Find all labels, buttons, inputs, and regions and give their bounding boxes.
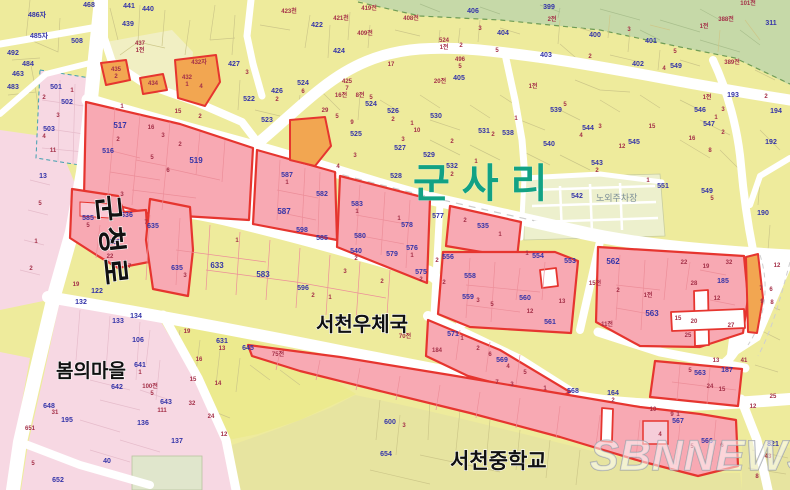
parcel-label: 190: [757, 210, 769, 217]
parcel-label: 529: [423, 152, 435, 159]
parcel-label: 132: [75, 299, 87, 306]
parcel-label: 551: [657, 183, 669, 190]
parcel-label: 526: [387, 108, 399, 115]
parcel-label: 399: [543, 4, 555, 11]
label-parking: 노외주차장: [596, 192, 637, 203]
parcel-label: 15전: [589, 279, 602, 287]
parcel-label: 528: [390, 173, 402, 180]
label-middle-school: 서천중학교: [450, 450, 547, 473]
parcel-label: 523: [261, 117, 273, 124]
parcel-label: 13: [39, 173, 47, 180]
parcel-label: 424: [333, 48, 345, 55]
parcel-label: 542: [571, 193, 583, 200]
parcel-label: 432: [182, 75, 193, 81]
parcel-label: 12: [750, 404, 757, 410]
parcel-label: 539: [550, 107, 562, 114]
parcel-label: 29: [322, 108, 329, 114]
parcel-label: 485자: [30, 31, 49, 40]
parcel-label: 540: [350, 248, 362, 255]
parcel-label: 421천: [333, 14, 349, 22]
parcel-label: 41: [741, 358, 748, 364]
parcel-label: 559: [462, 294, 474, 301]
parcel-label: 16: [196, 357, 203, 363]
parcel-label: 560: [519, 295, 531, 302]
parcel-label: 434: [148, 81, 159, 87]
parcel-label: 486자: [28, 10, 47, 19]
parcel-label: 427: [228, 61, 240, 68]
parcel-label: 580: [354, 233, 366, 240]
parcel-label: 100전: [142, 382, 158, 390]
parcel-label: 12: [619, 144, 626, 150]
parcel-label: 408전: [403, 14, 419, 22]
parcel-label: 17: [388, 62, 395, 68]
parcel-label: 522: [243, 96, 255, 103]
parcel-label: 558: [464, 273, 476, 280]
parcel-label: 538: [502, 130, 514, 137]
parcel-label: 106: [132, 337, 144, 344]
parcel-label: 400: [589, 32, 601, 39]
parcel-label: 568: [567, 388, 579, 395]
parcel-label: 540: [543, 141, 555, 148]
parcel-label: 111: [157, 408, 167, 414]
parcel-label: 185: [717, 278, 729, 285]
parcel-label: 1전: [644, 291, 653, 299]
parcel-label: 1전: [703, 93, 712, 101]
parcel-label: 15: [719, 387, 726, 393]
parcel-label: 563: [694, 370, 706, 377]
parcel-label: 13: [559, 299, 566, 305]
parcel-label: 20전: [434, 77, 447, 85]
parcel-label: 635: [171, 265, 183, 272]
parcel-label: 425: [342, 79, 353, 85]
parcel-label: 651: [25, 426, 36, 432]
parcel-label: 75전: [272, 350, 285, 358]
parcel-label: 524: [365, 101, 377, 108]
parcel-label: 195: [61, 417, 73, 424]
parcel-label: 576: [406, 245, 418, 252]
parcel-label: 1전: [136, 46, 145, 54]
label-bom-village: 봄의마을: [56, 360, 126, 382]
parcel-label: 32: [189, 401, 196, 407]
parcel-label: 562: [606, 257, 620, 266]
parcel-label: 633: [210, 261, 224, 270]
parcel-label: 631: [216, 338, 228, 345]
parcel-label: 544: [582, 125, 594, 132]
parcel-label: 19: [184, 329, 191, 335]
parcel-label: 22: [681, 260, 688, 266]
parcel-label: 556: [442, 254, 454, 261]
parcel-label: 563: [645, 309, 659, 318]
parcel-label: 32: [726, 260, 733, 266]
parcel-label: 1전: [700, 22, 709, 30]
parcel-label: 25: [770, 394, 777, 400]
parcel-label: 587: [281, 172, 293, 179]
parcel-label: 554: [532, 253, 544, 260]
parcel-label: 193: [727, 92, 739, 99]
parcel-label: 16: [689, 136, 696, 142]
parcel-label: 527: [394, 145, 406, 152]
parcel-label: 20: [691, 319, 698, 325]
parcel-label: 15: [675, 316, 682, 322]
parcel-label: 401: [645, 38, 657, 45]
parcel-label: 389전: [724, 58, 740, 66]
parcel-label: 194: [770, 108, 782, 115]
parcel-label: 648: [43, 403, 55, 410]
label-post-office: 서천우체국: [316, 313, 408, 336]
parcel-label: 423천: [281, 7, 297, 15]
parcel-label: 1전: [529, 82, 538, 90]
parcel-label: 101전: [740, 0, 756, 7]
parcel-label: 549: [701, 188, 713, 195]
parcel-label: 435: [111, 67, 122, 73]
parcel-label: 16전: [335, 91, 348, 99]
parcel-label: 654: [380, 451, 392, 458]
parcel-label: 440: [142, 6, 154, 13]
parcel-label: 136: [137, 420, 149, 427]
parcel-label: 583: [351, 201, 363, 208]
parcel-label: 530: [430, 113, 442, 120]
parcel-label: 388전: [718, 15, 734, 23]
map-screenshot: 486자468485자5084924844634834414404394371전…: [0, 0, 790, 490]
parcel-label: 134: [130, 313, 142, 320]
parcel-label: 596: [297, 285, 309, 292]
parcel-label: 419전: [361, 4, 377, 12]
parcel-label: 547: [703, 121, 715, 128]
parcel-label: 645: [242, 345, 254, 352]
parcel-label: 12: [221, 432, 228, 438]
parcel-label: 187: [721, 367, 733, 374]
parcel-label: 15: [649, 124, 656, 130]
parcel-label: 164: [607, 390, 619, 397]
parcel-label: 545: [628, 139, 640, 146]
parcel-label: 19: [73, 282, 80, 288]
parcel-label: 406: [467, 8, 479, 15]
parcel-label: 24: [707, 384, 714, 390]
parcel-label: 463: [12, 71, 24, 78]
parcel-label: 642: [111, 384, 123, 391]
parcel-label: 516: [102, 148, 114, 155]
parcel-label: 600: [384, 419, 396, 426]
parcel-label: 439: [122, 21, 134, 28]
parcel-label: 12: [527, 309, 534, 315]
parcel-label: 492: [7, 50, 19, 57]
parcel-label: 641: [134, 362, 146, 369]
parcel-label: 535: [477, 223, 489, 230]
parcel-label: 133: [112, 318, 124, 325]
parcel-label: 501: [50, 84, 62, 91]
parcel-label: 404: [497, 30, 509, 37]
parcel-label: 503: [43, 126, 55, 133]
parcel-label: 531: [478, 128, 490, 135]
parcel-label: 426: [271, 88, 283, 95]
parcel-label: 587: [277, 207, 291, 216]
parcel-label: 468: [83, 2, 95, 9]
map-viewport[interactable]: 486자468485자5084924844634834414404394371전…: [0, 0, 790, 490]
parcel-label: 437: [135, 41, 146, 47]
parcel-label: 15: [190, 377, 197, 383]
parcel-label: 10: [650, 407, 657, 413]
parcel-label: 546: [694, 107, 706, 114]
parcel-label: 10: [414, 128, 421, 134]
parcel-label: 405: [453, 75, 465, 82]
parcel-label: 549: [670, 63, 682, 70]
parcel-label: 508: [71, 38, 83, 45]
parcel-label: 585: [316, 235, 328, 242]
parcel-label: 496: [455, 57, 466, 63]
parcel-label: 14: [215, 381, 222, 387]
parcel-label: 519: [189, 156, 203, 165]
parcel-label: 561: [544, 319, 556, 326]
parcel-label: 643: [160, 399, 172, 406]
parcel-label: 11전: [601, 320, 613, 328]
parcel-label: 525: [350, 131, 362, 138]
parcel-label: 569: [496, 357, 508, 364]
parcel-label: 8전: [356, 91, 365, 99]
parcel-label: 40: [103, 458, 111, 465]
parcel-label: 11: [50, 148, 57, 154]
parcel-label: 1전: [440, 43, 449, 51]
parcel-label: 13: [219, 346, 226, 352]
parcel-label: 402: [632, 61, 644, 68]
parcel-label: 578: [401, 222, 413, 229]
parcel-label: 524: [297, 80, 309, 87]
parcel-label: 598: [296, 227, 308, 234]
parcel-label: 28: [691, 281, 698, 287]
parcel-label: 15: [175, 109, 182, 115]
parcel-label: 517: [113, 121, 127, 130]
parcel-label: 575: [415, 269, 427, 276]
parcel-label: 524: [439, 38, 450, 44]
parcel-label: 582: [316, 191, 328, 198]
parcel-label: 635: [147, 223, 159, 230]
parcel-label: 543: [591, 160, 603, 167]
highlight-zone-553[interactable]: [438, 252, 578, 333]
parcel-label: 652: [52, 477, 64, 484]
parcel-label: 2전: [548, 15, 557, 23]
parcel-label: 24: [208, 414, 215, 420]
parcel-label: 577: [432, 213, 444, 220]
parcel-label: 13: [713, 358, 720, 364]
parcel-label: 192: [765, 139, 777, 146]
parcel-label: 567: [672, 418, 684, 425]
parcel-label: 16: [148, 125, 155, 131]
watermark-sbnnews: SBNNEWS: [590, 432, 790, 480]
parcel-label: 571: [447, 331, 459, 338]
parcel-label: 553: [564, 258, 576, 265]
parcel-label: 583: [256, 270, 270, 279]
label-gunsari: 군사리: [413, 162, 559, 206]
parcel-label: 409전: [357, 29, 373, 37]
parcel-label: 311: [765, 20, 776, 27]
parcel-label: 12: [774, 263, 781, 269]
parcel-label: 441: [123, 3, 135, 10]
parcel-label: 502: [61, 99, 73, 106]
parcel-label: 422: [311, 22, 323, 29]
parcel-label: 579: [386, 251, 398, 258]
parcel-label: 27: [728, 323, 735, 329]
parcel-label: 403: [540, 52, 552, 59]
parcel-label: 483: [7, 84, 19, 91]
highlight-zone-637[interactable]: [146, 199, 193, 296]
parcel-label: 19: [703, 264, 710, 270]
parcel-label: 25: [685, 333, 692, 339]
parcel-label: 432자: [191, 58, 207, 66]
parcel-label: 12: [714, 296, 721, 302]
parcel-label: 484: [22, 61, 34, 68]
parcel-label: 31: [52, 410, 59, 416]
parcel-label: 137: [171, 438, 183, 445]
parcel-label: 184: [432, 348, 443, 354]
